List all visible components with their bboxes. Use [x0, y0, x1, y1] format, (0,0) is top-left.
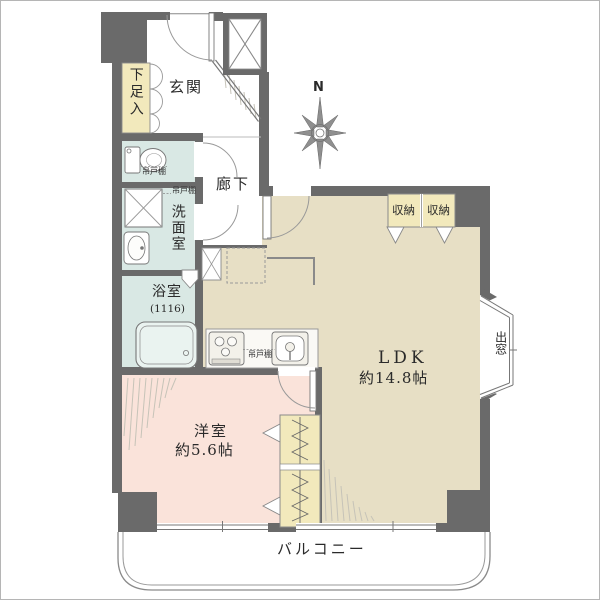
storage-label-2: 収納	[427, 204, 450, 216]
compass-rose	[294, 97, 346, 169]
elevator-shaft	[223, 13, 267, 75]
washroom-door	[194, 204, 238, 240]
pipe-space	[202, 248, 221, 280]
bathtub	[136, 322, 197, 368]
compass-north-label: N	[313, 81, 324, 95]
bathroom-label: 浴室	[152, 285, 182, 300]
stove	[209, 332, 244, 365]
western-room-label: 洋室	[194, 424, 228, 440]
pillar-bottom-left	[118, 492, 157, 532]
shoe-cabinet-label: 下足入	[128, 67, 143, 118]
floor-plan: N 下足入 玄関 廊下 吊戸棚 吊戸棚 洗面室 浴室 (1116) 吊戸棚 収納…	[0, 0, 600, 600]
pillar-top-left	[101, 12, 147, 63]
kitchen-counter	[206, 329, 318, 368]
kitchen-sink	[272, 332, 308, 365]
bay-window-label: 出窓	[494, 331, 507, 355]
hanging-cabinet-label-kitchen: 吊戸棚	[248, 351, 272, 359]
balcony-label: バルコニー	[277, 542, 367, 558]
hanging-cabinet-label-washroom: 吊戸棚	[172, 187, 196, 195]
bathroom-size-label: (1116)	[150, 304, 185, 315]
washing-machine	[125, 189, 162, 227]
entrance-label: 玄関	[169, 80, 203, 96]
wash-basin	[124, 232, 149, 264]
washroom-label: 洗面室	[170, 204, 185, 252]
storage-label-1: 収納	[392, 204, 415, 216]
entrance-door	[167, 12, 214, 61]
hallway-label: 廊下	[216, 177, 250, 193]
ldk-size-label: 約14.8帖	[359, 371, 428, 387]
western-room-size-label: 約5.6帖	[175, 443, 234, 459]
floor-plan-drawing	[0, 0, 600, 600]
hanging-cabinet-label-toilet: 吊戸棚	[142, 168, 166, 176]
toilet-door	[194, 142, 237, 177]
pillar-bottom-right	[447, 490, 490, 532]
ldk-label: LDK	[378, 350, 428, 368]
